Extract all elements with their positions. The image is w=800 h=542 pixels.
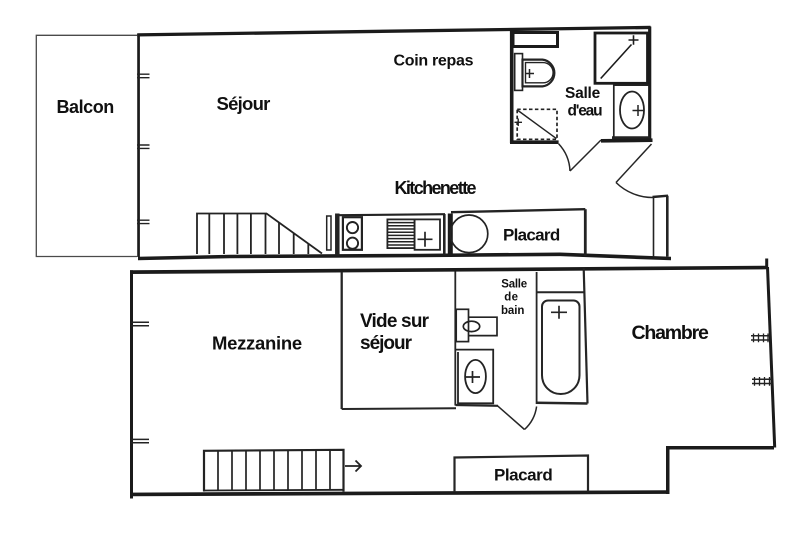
svg-text:bain: bain <box>501 305 524 317</box>
svg-text:d'eau: d'eau <box>568 103 603 120</box>
svg-text:Vide sur: Vide sur <box>360 311 430 332</box>
svg-text:séjour: séjour <box>360 333 413 354</box>
svg-text:Salle: Salle <box>565 85 601 102</box>
svg-text:Mezzanine: Mezzanine <box>212 333 302 354</box>
svg-text:Chambre: Chambre <box>632 322 709 344</box>
svg-text:de: de <box>504 292 518 304</box>
svg-text:Balcon: Balcon <box>57 97 114 117</box>
svg-text:Placard: Placard <box>494 466 552 485</box>
svg-text:Kitchenette: Kitchenette <box>395 178 477 198</box>
svg-text:Salle: Salle <box>501 279 527 291</box>
svg-text:Placard: Placard <box>503 226 560 245</box>
svg-text:Coin repas: Coin repas <box>394 53 474 70</box>
svg-text:Séjour: Séjour <box>217 93 271 114</box>
